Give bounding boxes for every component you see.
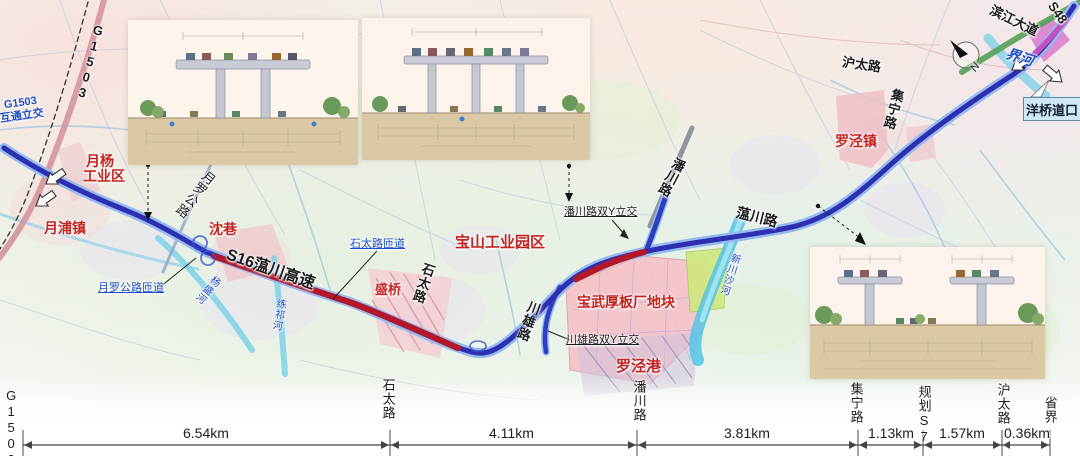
panchuan-road-label: 潘川路 <box>655 155 687 198</box>
chuanxiong-interchange-label: 川雄路双Y立交 <box>566 335 639 347</box>
shitai-ramp-label: 石太路匝道 <box>350 239 405 251</box>
route-map-screenshot: G1503 G1503 互通立交 月杨 工业区 月浦镇 月罗公路 沈巷 S16蕰… <box>0 0 1080 456</box>
g1503-road-label: G1503 <box>74 22 107 103</box>
lianqi-river-label: 练祁河 <box>269 297 285 331</box>
chuanxiong-road-label: 川雄路 <box>514 299 541 343</box>
yueyang-zone-label-line2: 工业区 <box>83 169 125 184</box>
s48-road-label: S48 <box>1045 0 1069 26</box>
xinchuansha-river-label: 新川沙河 <box>716 251 740 296</box>
yangqiao-toll-callout: 洋桥道口 <box>1023 97 1080 121</box>
luojing-town-label: 罗泾镇 <box>835 134 877 149</box>
s16-expressway-label: S16蕰川高速 <box>224 247 317 293</box>
wenchuan-road-label: 蕰川路 <box>735 205 779 229</box>
scale-bar <box>0 370 1080 456</box>
compass-n-label: N <box>969 61 983 74</box>
shitai-road-label: 石太路 <box>410 261 436 305</box>
yueyang-zone-label-line1: 月杨 <box>86 154 114 169</box>
yuepu-town-label: 月浦镇 <box>44 221 86 236</box>
baowu-plate-plant-label: 宝武厚板厂地块 <box>577 295 675 310</box>
yueluo-ramp-label: 月罗公路匝道 <box>98 283 164 295</box>
binjiang-avenue-label: 滨江大道 <box>988 3 1041 38</box>
shengqiao-label: 盛桥 <box>375 283 401 297</box>
yangsheng-river-label: 杨盛河 <box>192 272 221 304</box>
yangqiao-toll-label: 洋桥道口 <box>1026 100 1078 119</box>
jie-river-label: 界河 <box>1004 46 1035 69</box>
baoshan-industrial-park-label: 宝山工业园区 <box>455 235 545 251</box>
jining-road-label: 集宁路 <box>881 87 905 131</box>
yueluo-road-label: 月罗公路 <box>172 168 217 221</box>
hutai-road-label: 沪太路 <box>841 55 882 74</box>
panchuan-interchange-label: 潘川路双Y立交 <box>564 207 637 219</box>
shenxiang-label: 沈巷 <box>209 222 237 237</box>
